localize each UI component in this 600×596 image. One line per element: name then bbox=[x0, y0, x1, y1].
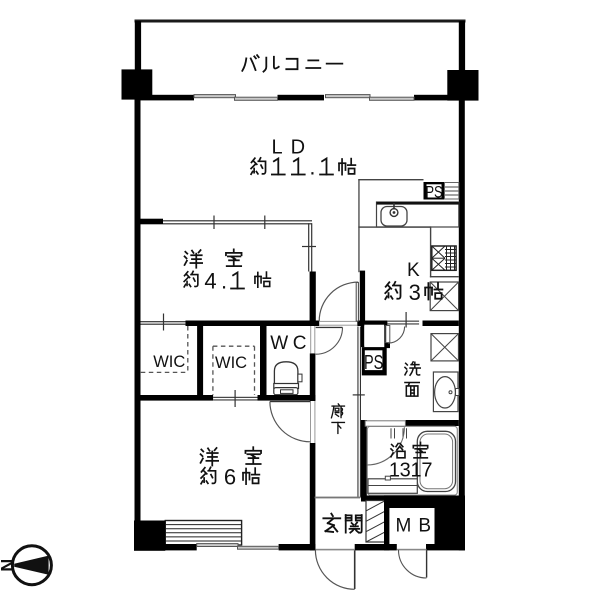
svg-text:K: K bbox=[407, 260, 420, 281]
svg-text:MB: MB bbox=[396, 516, 439, 537]
svg-text:6: 6 bbox=[224, 465, 236, 490]
svg-text:.: . bbox=[309, 155, 315, 180]
svg-text:PS: PS bbox=[364, 351, 383, 374]
svg-text:WC: WC bbox=[270, 333, 311, 354]
svg-text:N: N bbox=[0, 559, 18, 572]
svg-text:1317: 1317 bbox=[389, 460, 432, 482]
svg-text:3: 3 bbox=[409, 280, 421, 305]
svg-text:.: . bbox=[221, 269, 227, 294]
svg-text:LD: LD bbox=[272, 137, 314, 159]
svg-text:4: 4 bbox=[204, 269, 216, 294]
svg-text:PS: PS bbox=[425, 183, 442, 202]
svg-text:WIC: WIC bbox=[215, 354, 247, 372]
svg-text:WIC: WIC bbox=[153, 353, 185, 371]
